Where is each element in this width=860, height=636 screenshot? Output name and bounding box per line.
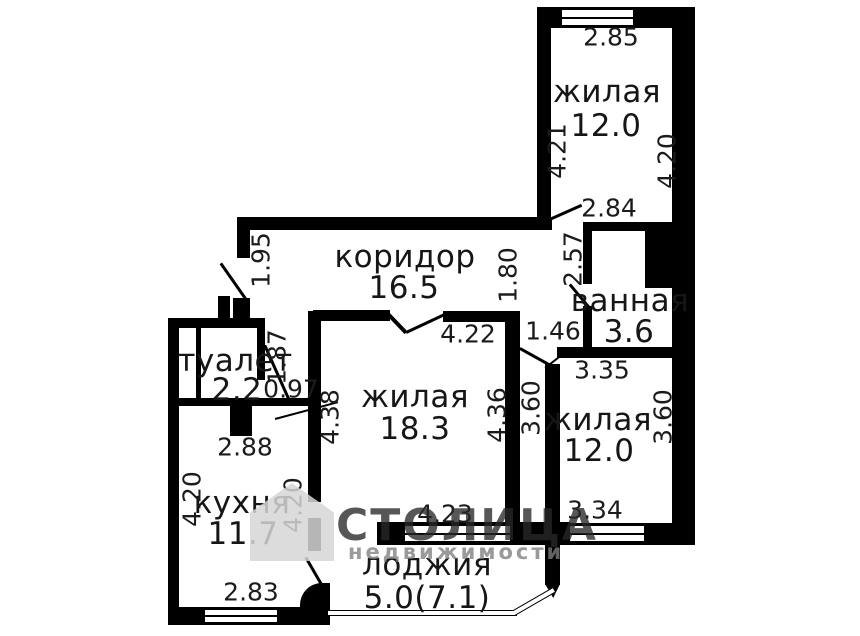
wall-roomtop-left <box>537 7 551 230</box>
window-mullion <box>562 17 633 19</box>
door-jamb-roomcenter <box>387 313 408 334</box>
wall-kitchen-top-stub <box>230 406 252 436</box>
watermark-agency-subtitle: недвижимости <box>348 540 564 564</box>
dim-bath-bottom: 3.35 <box>574 356 630 385</box>
room-area-corridor: 16.5 <box>368 270 439 306</box>
room-name-bedroom-center: жилая <box>361 379 469 415</box>
window-mullion <box>205 615 277 617</box>
door-swing-roomright <box>519 347 551 366</box>
dim-right-right: 3.60 <box>649 389 678 445</box>
room-area-bathroom: 3.6 <box>604 314 655 350</box>
room-area-bedroom-right: 12.0 <box>563 433 634 469</box>
room-area-toilet: 2.2 <box>212 372 263 408</box>
dim-center-left: 4.38 <box>316 389 345 445</box>
dim-kitchen-left: 4.20 <box>178 471 207 527</box>
window-kitchen <box>205 610 277 622</box>
wall-corridor-top <box>237 217 552 230</box>
dim-corridor-left: 1.95 <box>247 232 276 288</box>
wall-roomcenter-top-left <box>313 310 390 321</box>
dim-bath-left: 2.57 <box>559 231 588 287</box>
wall-entrance-lower-stub <box>233 298 250 318</box>
dim-bath-pass: 1.46 <box>525 317 581 346</box>
floor-plan: жилая 12.0 коридор 16.5 ванная 3.6 туале… <box>0 0 860 636</box>
dim-kitchen-bottom: 2.83 <box>223 578 279 607</box>
room-area-loggia: 5.0(7.1) <box>364 580 491 616</box>
dim-top-right: 4.20 <box>653 133 682 189</box>
wall-roomtop-bottom <box>583 222 695 231</box>
dim-corridor-right: 1.80 <box>494 247 523 303</box>
wall-vent-shaft <box>645 231 695 288</box>
dim-top-width: 2.85 <box>583 23 639 52</box>
room-name-bedroom-top: жилая <box>553 74 661 110</box>
dim-toilet-bottom: 2.88 <box>217 433 273 462</box>
wall-toilet-top <box>168 318 265 328</box>
dim-top-door: 2.84 <box>581 194 637 223</box>
room-area-bedroom-center: 18.3 <box>379 411 450 447</box>
dim-center-top: 4.22 <box>440 320 496 349</box>
loggia-glazing-diagonal <box>513 587 556 615</box>
dim-center-right: 4.36 <box>483 387 512 443</box>
dim-top-left: 4.21 <box>543 123 572 179</box>
wall-toilet-link-stub <box>218 296 230 318</box>
room-area-bedroom-top: 12.0 <box>570 108 641 144</box>
dim-right-left: 3.60 <box>517 380 546 436</box>
dim-toilet-door: 0.97 <box>263 375 319 404</box>
